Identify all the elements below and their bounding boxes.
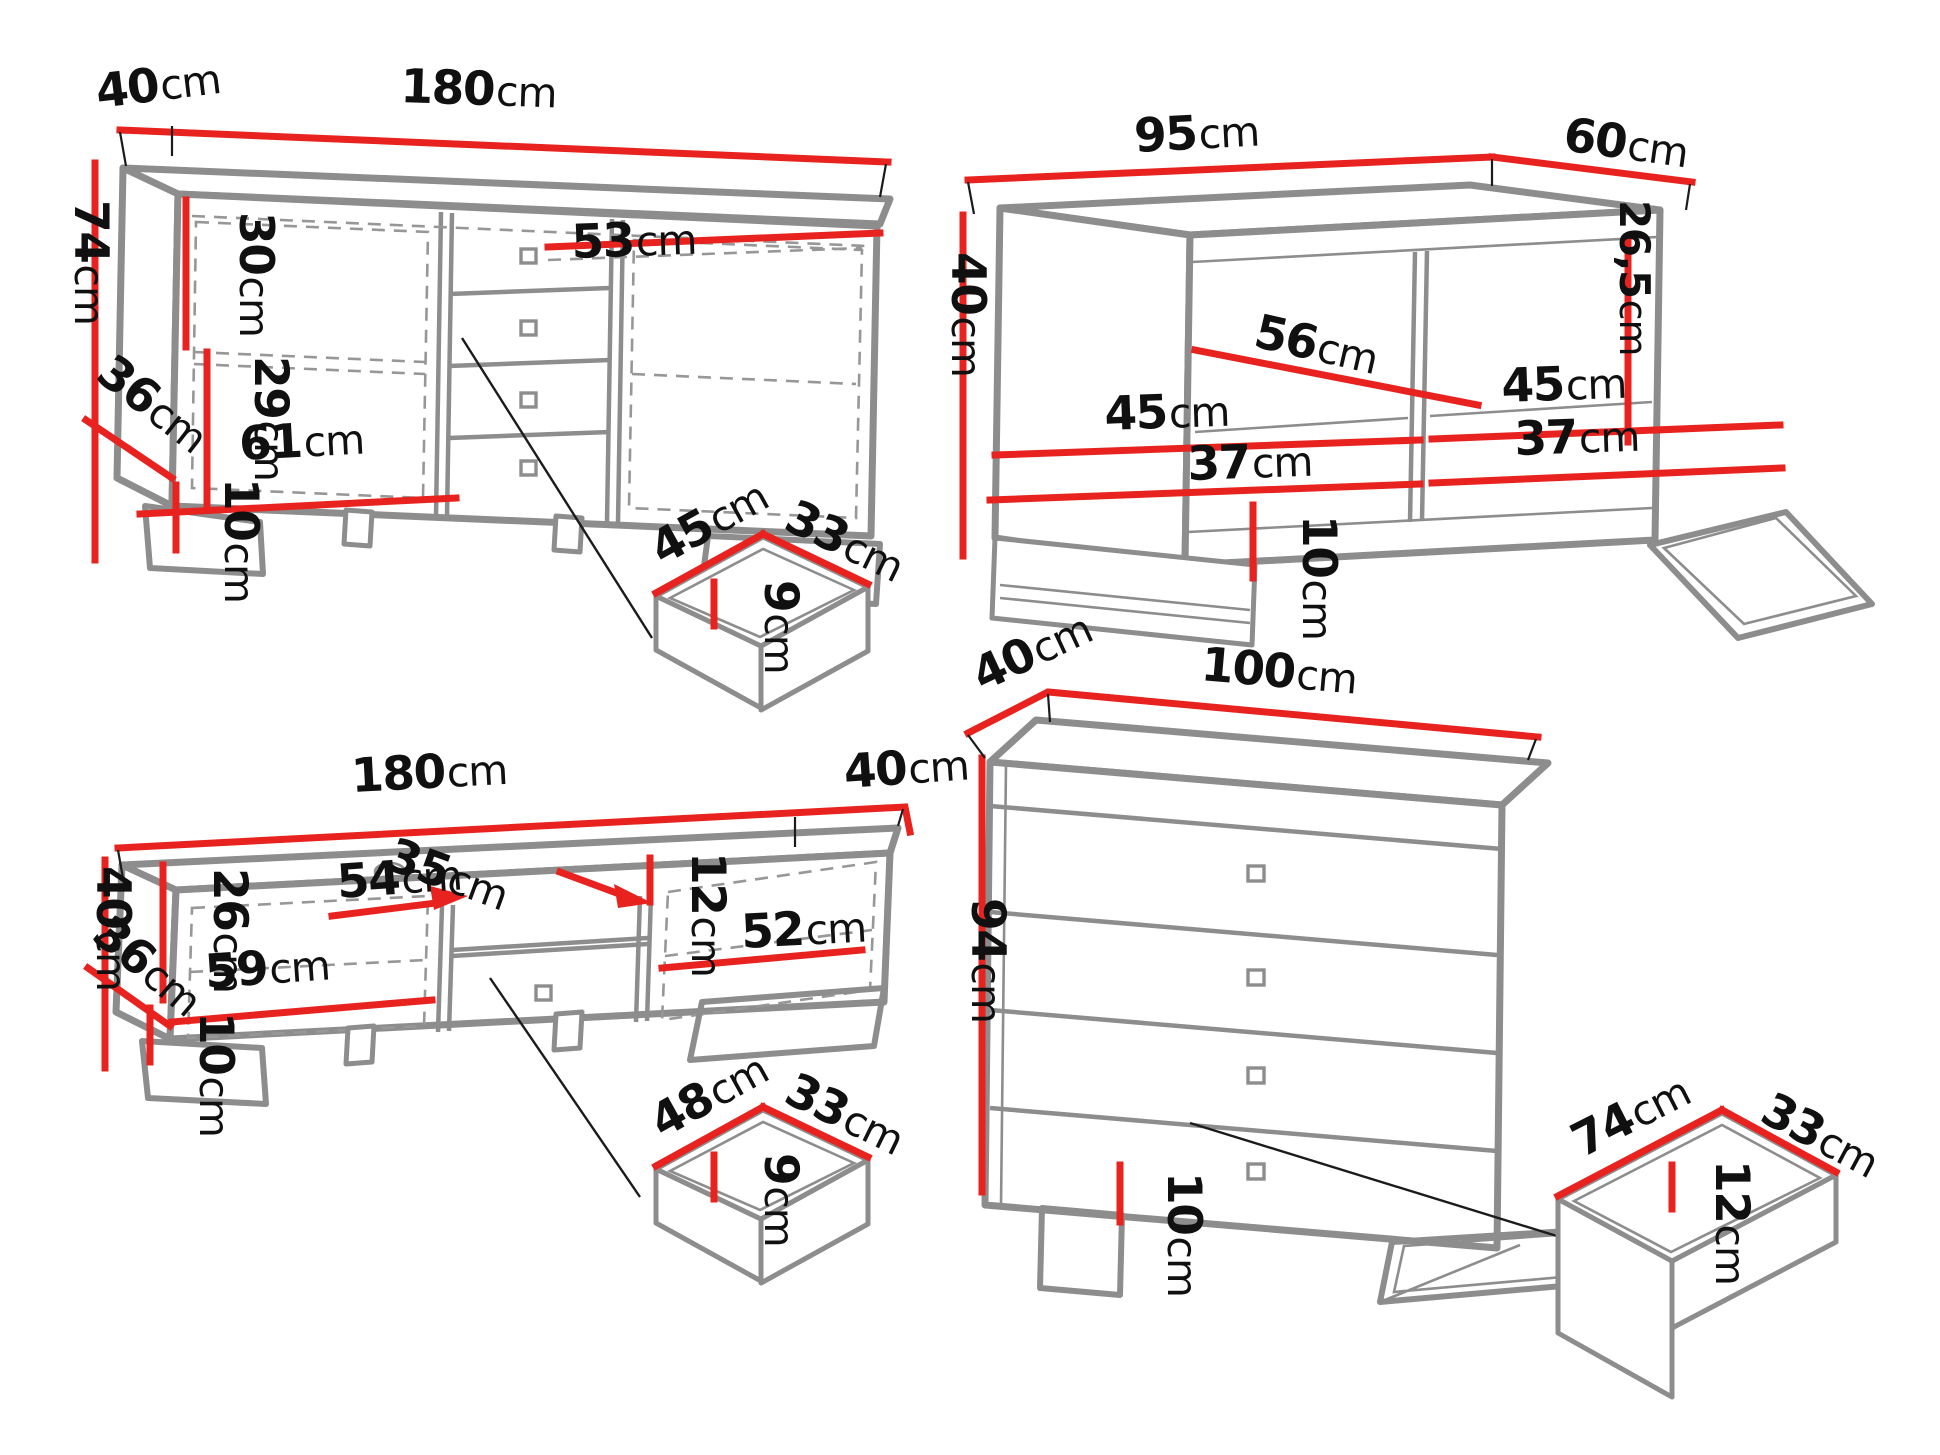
diagram-line: 180 bbox=[400, 59, 495, 117]
tv-stand-drawer-handle bbox=[536, 986, 551, 1000]
diagram-line: 74 bbox=[63, 200, 118, 262]
tv-stand-leg-label: 10cm bbox=[188, 1012, 243, 1137]
tv-stand-middle-foot bbox=[346, 1026, 374, 1064]
diagram-line: cm bbox=[215, 542, 263, 602]
diagram-line: cm bbox=[962, 962, 1010, 1022]
diagram-line: cm bbox=[1251, 438, 1313, 488]
diagram-line: 40 bbox=[940, 252, 995, 314]
diagram-line: cm bbox=[157, 55, 223, 110]
sideboard-width-label: 180cm bbox=[400, 59, 558, 119]
diagram-line: 10 bbox=[1291, 515, 1346, 577]
diagram-line: 9 bbox=[753, 1153, 808, 1184]
diagram-line: 180 bbox=[350, 744, 446, 804]
chest-drawer-handle bbox=[1248, 866, 1264, 881]
diagram-line: cm bbox=[1565, 360, 1627, 410]
chest-drawer-handle bbox=[1248, 970, 1264, 985]
diagram-line: cm bbox=[1578, 413, 1640, 463]
diagram-line: cm bbox=[302, 416, 365, 467]
diagram-line: cm bbox=[1293, 579, 1341, 639]
sideboard-drawer-handle bbox=[521, 461, 536, 475]
diagram-line: cm bbox=[635, 216, 697, 266]
diagram-line: 30 bbox=[228, 212, 283, 274]
diagram-line: 45 bbox=[1103, 385, 1167, 442]
sideboard-drawer-handle bbox=[521, 393, 536, 407]
diagram-line: 40 bbox=[842, 741, 908, 800]
diagram-line: 37 bbox=[1186, 435, 1250, 492]
diagram-line: 12 bbox=[1704, 1160, 1759, 1222]
diagram-line: 12 bbox=[680, 852, 735, 914]
diagram-line: cm bbox=[1611, 300, 1655, 356]
sideboard-height-label: 74cm bbox=[63, 200, 118, 325]
diagram-line: 45 bbox=[1500, 357, 1564, 414]
diagram-line: 29 bbox=[243, 356, 298, 418]
diagram-line: cm bbox=[1158, 1236, 1206, 1296]
diagram-line: cm bbox=[495, 67, 557, 117]
coffee-table-width-dimension-line bbox=[968, 157, 1492, 180]
chest-drawer-handle bbox=[1248, 1164, 1264, 1179]
sideboard-middle-foot bbox=[344, 510, 372, 546]
diagram-line: 37 bbox=[1513, 410, 1577, 467]
drawer-height-label: 9cm bbox=[753, 580, 808, 674]
diagram-line: 9 bbox=[753, 580, 808, 611]
diagram-line: 10 bbox=[213, 478, 268, 540]
diagram-line: 40 bbox=[93, 58, 162, 120]
sideboard-depth-label: 40cm bbox=[93, 50, 224, 120]
coffee-table-width-label: 95cm bbox=[1133, 103, 1261, 164]
coffee-table-leg-label: 10cm bbox=[1291, 515, 1346, 640]
diagram-line: 61 bbox=[238, 414, 303, 472]
diagram-line: cm bbox=[268, 941, 332, 993]
diagram-line: cm bbox=[755, 613, 803, 673]
diagram-line: 60 bbox=[1560, 107, 1629, 170]
chest-of-drawers: 40cm 100cm 94cm 10cm bbox=[960, 600, 1584, 1302]
sideboard-width-dimension-line bbox=[120, 130, 888, 162]
chest-drawer-handle bbox=[1248, 1068, 1264, 1083]
diagram-line: cm bbox=[445, 746, 508, 797]
coffee-table: 95cm 60cm 40cm 26,5cm 56cm 45cm 37cm 45c… bbox=[940, 103, 1872, 645]
sideboard-left-face bbox=[117, 168, 178, 506]
diagram-line: 94 bbox=[960, 898, 1015, 960]
diagram-line: cm bbox=[907, 741, 971, 793]
diagram-line: cm bbox=[65, 264, 113, 324]
drawer-height-label: 9cm bbox=[753, 1153, 808, 1247]
chest-width-label: 100cm bbox=[1199, 637, 1359, 705]
diagram-line: 10 bbox=[188, 1012, 243, 1074]
tv-stand-depth-label: 40cm bbox=[842, 736, 970, 800]
diagram-line: 10 bbox=[1156, 1172, 1211, 1234]
diagram-line: cm bbox=[1706, 1224, 1754, 1284]
chest-left-leg bbox=[1040, 1208, 1122, 1295]
sideboard-drawer-handle bbox=[521, 321, 536, 335]
tv-stand-width-label: 180cm bbox=[350, 741, 509, 804]
diagram-line: cm bbox=[682, 916, 730, 976]
tv-stand-drawer: 48cm 33cm 9cm bbox=[641, 1041, 913, 1283]
diagram-line: cm bbox=[1294, 650, 1358, 703]
diagram-line: cm bbox=[942, 316, 990, 376]
diagram-line: cm bbox=[804, 904, 867, 955]
chest-front-face bbox=[985, 762, 1502, 1248]
diagram-line: 52 bbox=[740, 902, 805, 960]
coffee-table-height-label: 40cm bbox=[940, 252, 995, 377]
diagram-line: cm bbox=[230, 276, 278, 336]
diagram-line: 26,5 bbox=[1610, 200, 1659, 298]
chest-leg-label: 10cm bbox=[1156, 1172, 1211, 1297]
tv-stand-middle-foot bbox=[554, 1012, 582, 1050]
diagram-line: 100 bbox=[1199, 637, 1297, 700]
diagram-page: 40cm 180cm 74cm 30cm 53cm 29cm 61cm 36cm… bbox=[0, 0, 1940, 1455]
diagram-line: 95 bbox=[1133, 106, 1198, 164]
diagram-line: cm bbox=[1197, 108, 1260, 159]
diagram-line: 59 bbox=[203, 941, 269, 1000]
coffee-table-inner-height-label: 26,5cm bbox=[1610, 200, 1659, 356]
diagram-line: cm bbox=[1624, 121, 1691, 177]
diagram-line: 53 bbox=[570, 213, 634, 270]
diagram-line: cm bbox=[1168, 388, 1230, 438]
sideboard-drawer-handle bbox=[521, 249, 536, 263]
chest-drawer: 74cm 33cm 12cm bbox=[1558, 1063, 1888, 1397]
diagram-line: 26 bbox=[202, 868, 257, 930]
diagram-line: cm bbox=[755, 1186, 803, 1246]
furniture-dimension-diagram: 40cm 180cm 74cm 30cm 53cm 29cm 61cm 36cm… bbox=[0, 0, 1940, 1455]
diagram-line: cm bbox=[190, 1076, 238, 1136]
